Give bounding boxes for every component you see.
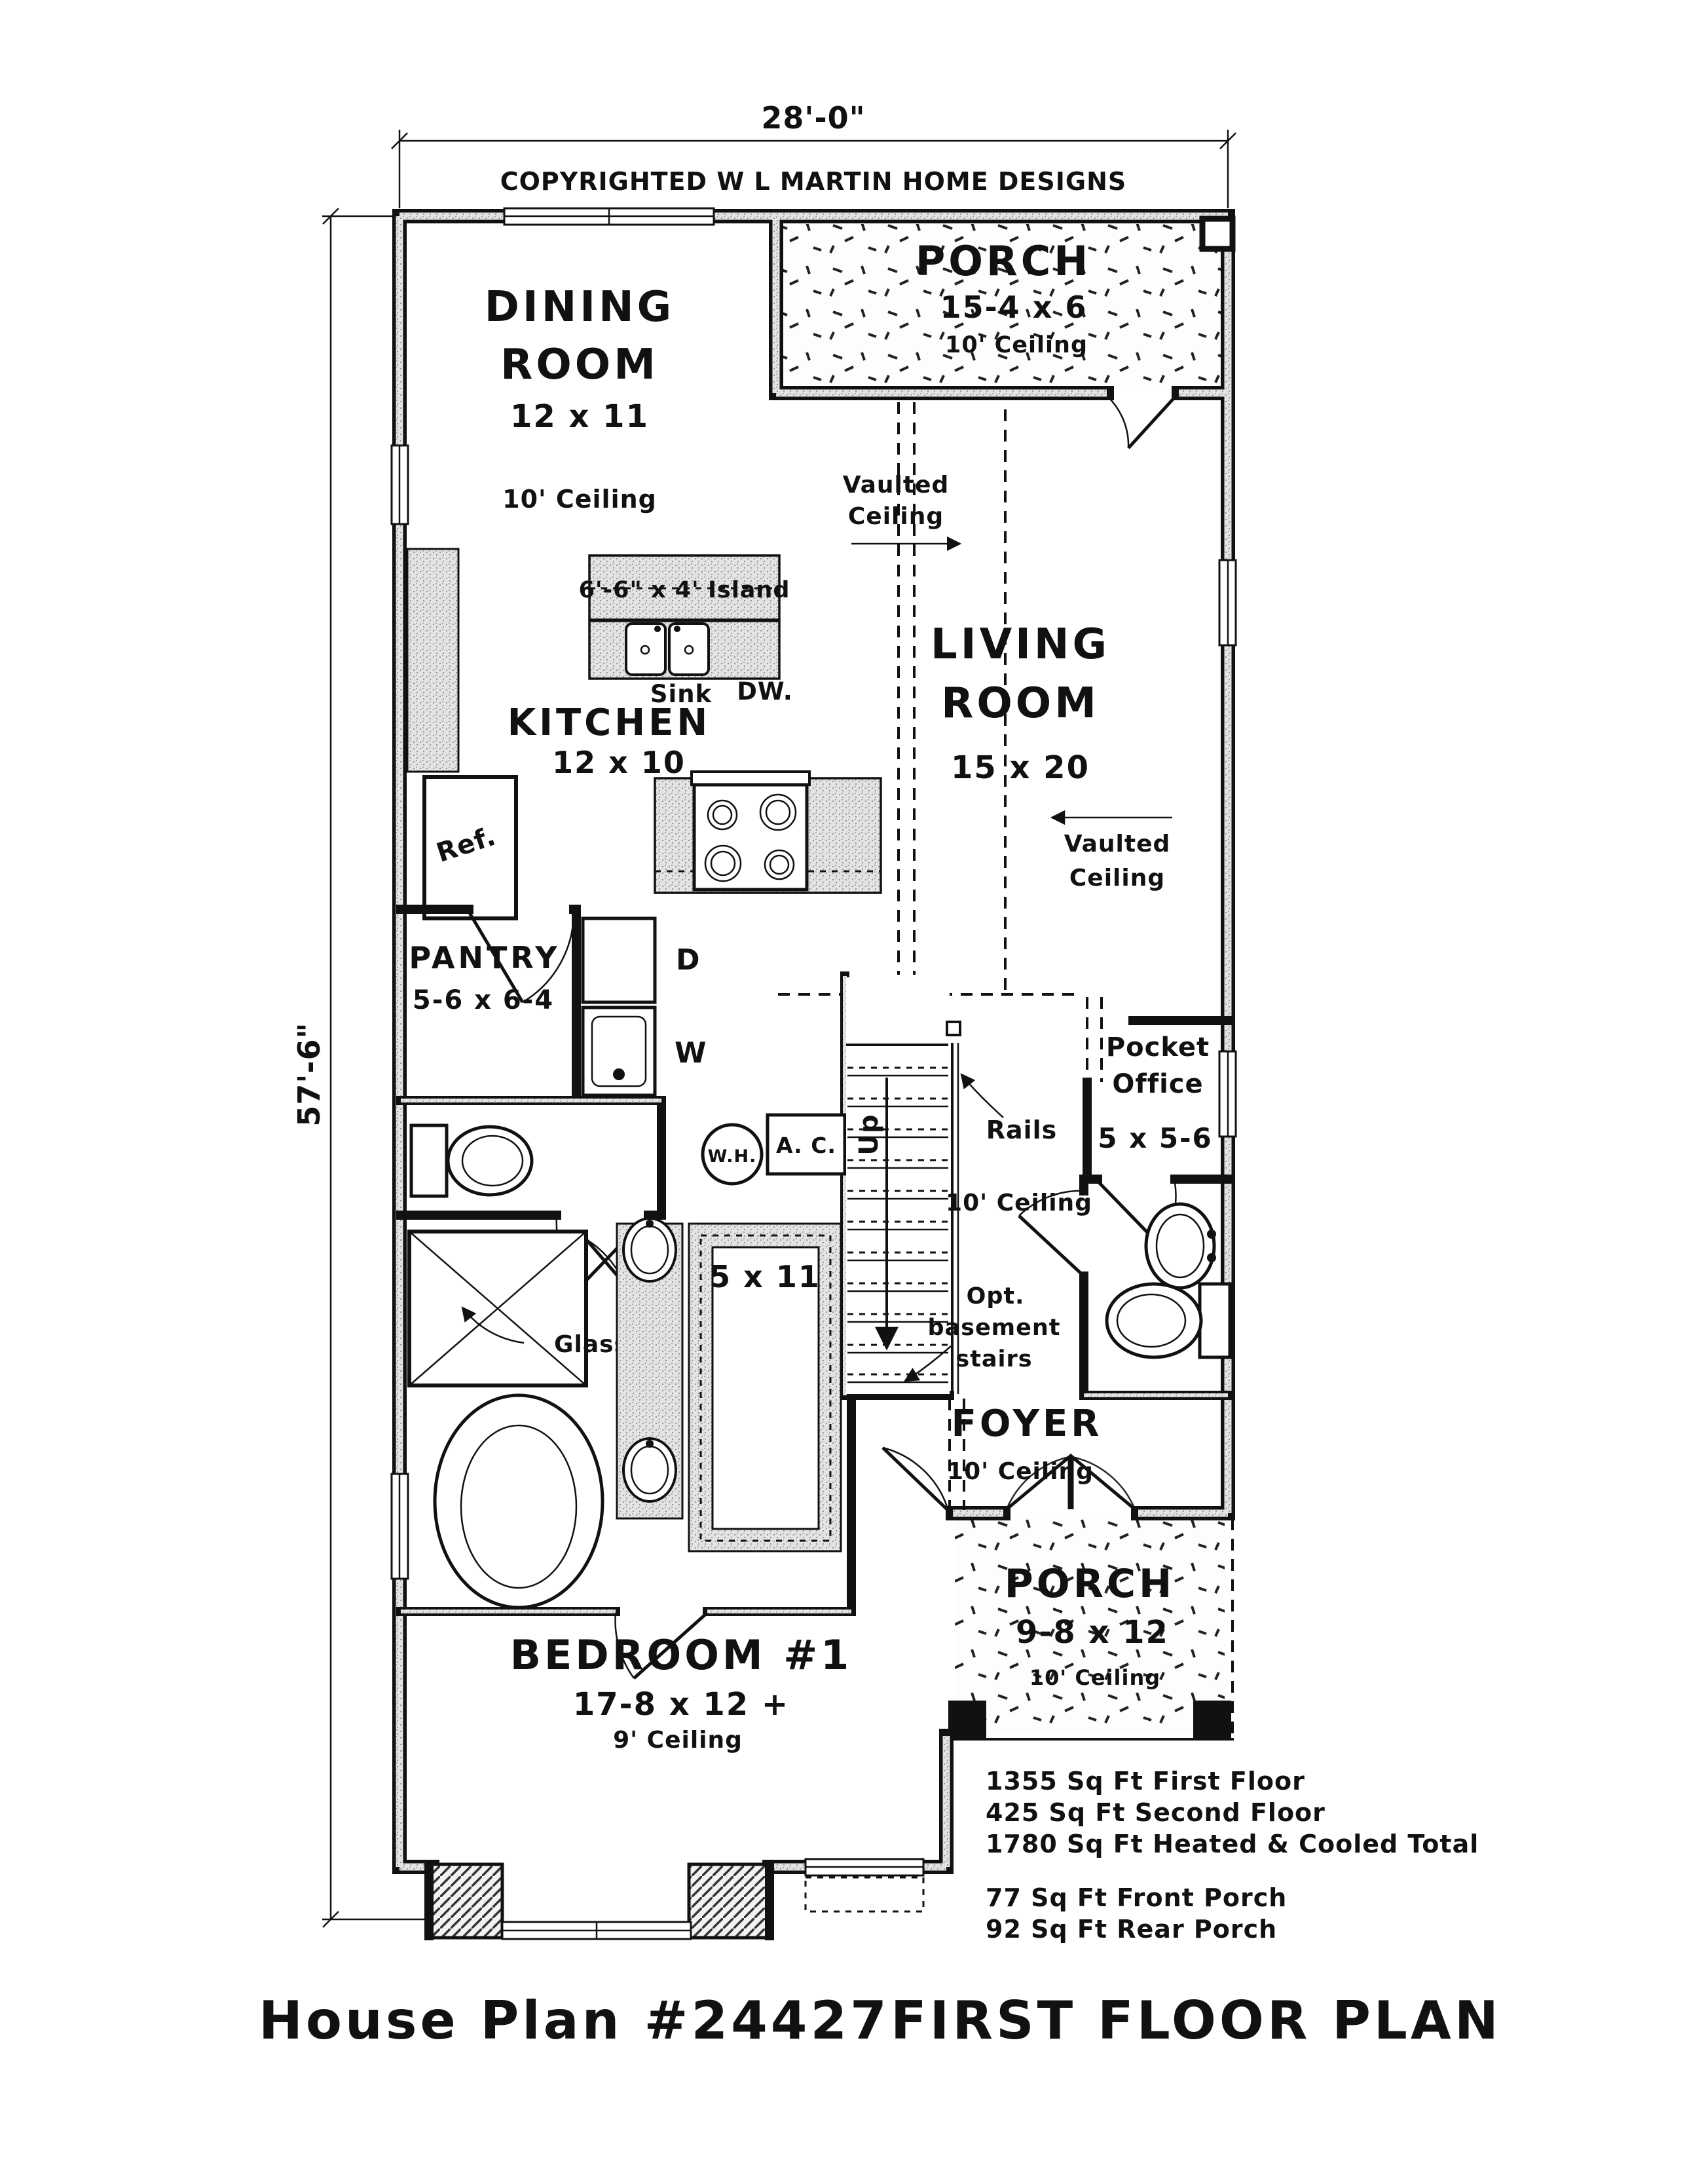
closet-size: 5 x 11: [709, 1259, 821, 1294]
depth-dimension-text: 57'-6": [291, 1022, 327, 1126]
kitchen-size: 12 x 10: [552, 745, 686, 780]
pantry-size: 5-6 x 6-4: [413, 985, 554, 1015]
front-porch-label: PORCH: [1005, 1561, 1175, 1607]
floor-plan-sheet: 28'-0" 57'-6" COPYRIGHTED W L MARTIN HOM…: [0, 0, 1687, 2184]
dryer-box: [583, 918, 655, 1002]
dryer-label: D: [676, 943, 701, 977]
dining-label-2: ROOM: [500, 341, 659, 389]
area-second-floor: 425 Sq Ft Second Floor: [986, 1798, 1325, 1827]
rear-porch-ceiling: 10' Ceiling: [945, 332, 1088, 358]
floor-plan-drawing: 28'-0" 57'-6" COPYRIGHTED W L MARTIN HOM…: [0, 0, 1687, 2184]
rear-porch-size: 15-4 x 6: [940, 290, 1088, 325]
area-rear-porch: 92 Sq Ft Rear Porch: [986, 1915, 1277, 1944]
porch-column: [1193, 1701, 1231, 1739]
opt-line2: basement: [927, 1315, 1060, 1341]
kitchen-counter: [655, 772, 881, 893]
porch-post: [1202, 219, 1233, 249]
rails-label: Rails: [986, 1116, 1058, 1144]
water-heater-label: W.H.: [708, 1146, 757, 1167]
area-first-floor: 1355 Sq Ft First Floor: [986, 1767, 1305, 1796]
kitchen-island: [589, 555, 779, 679]
front-porch-ceiling: 10' Ceiling: [1029, 1665, 1160, 1690]
pantry-label: PANTRY: [409, 940, 560, 975]
dining-room: DINING ROOM 12 x 11 10' Ceiling: [485, 283, 675, 514]
sheet-name: FIRST FLOOR PLAN: [891, 1990, 1502, 2051]
area-front-porch: 77 Sq Ft Front Porch: [986, 1883, 1287, 1912]
water-heater: W.H.: [703, 1125, 762, 1184]
bedroom-window: [806, 1859, 923, 1911]
copyright-text: COPYRIGHTED W L MARTIN HOME DESIGNS: [500, 167, 1127, 196]
dining-size: 12 x 11: [510, 398, 649, 435]
refrigerator: Ref.: [424, 777, 516, 918]
dining-window: [504, 208, 714, 225]
title-block: House Plan #24427 FIRST FLOOR PLAN: [259, 1990, 1502, 2051]
ac-label: A. C.: [776, 1133, 836, 1158]
closet-5x11: 5 x 11: [689, 1224, 841, 1551]
living-window: [1219, 560, 1236, 645]
vaulted1-line1: Vaulted: [843, 472, 950, 499]
powder-bath: [1107, 1204, 1230, 1357]
vaulted-ceiling-note-1: Vaulted Ceiling: [843, 472, 960, 544]
island-label: 6'-6" x 4' Island: [579, 577, 790, 603]
pantry-labels: PANTRY 5-6 x 6-4: [409, 940, 560, 1015]
water-closet: [411, 1125, 532, 1196]
foyer-labels: FOYER 10' Ceiling: [947, 1403, 1102, 1485]
kitchen-label: KITCHEN: [508, 702, 711, 744]
bedroom-label: BEDROOM #1: [510, 1631, 853, 1679]
porch-column: [948, 1701, 986, 1739]
hall-ceiling-label: 10' Ceiling: [946, 1190, 1092, 1216]
width-dimension-text: 28'-0": [761, 100, 865, 136]
master-bath: Glass 5 x 11: [409, 1218, 841, 1608]
bedroom-labels: BEDROOM #1 17-8 x 12 + 9' Ceiling: [510, 1631, 853, 1754]
pocket-office-label-1: Pocket: [1106, 1032, 1210, 1063]
stove: [692, 772, 809, 890]
dw-label: DW.: [737, 677, 793, 706]
laundry-stack: D W: [583, 918, 707, 1095]
washer-label: W: [675, 1036, 707, 1070]
pocket-office-labels: Pocket Office 5 x 5-6: [1098, 1032, 1212, 1154]
pocket-office-size: 5 x 5-6: [1098, 1122, 1212, 1154]
area-total: 1780 Sq Ft Heated & Cooled Total: [986, 1830, 1479, 1858]
living-label-2: ROOM: [941, 679, 1100, 728]
rear-porch-label: PORCH: [916, 237, 1091, 285]
vaulted2-line1: Vaulted: [1064, 831, 1171, 857]
vaulted2-line2: Ceiling: [1069, 865, 1165, 892]
dining-ceiling: 10' Ceiling: [502, 485, 657, 514]
area-summary: 1355 Sq Ft First Floor 425 Sq Ft Second …: [986, 1767, 1479, 1944]
living-label-1: LIVING: [931, 620, 1110, 669]
bedroom-bay: [429, 1864, 769, 1939]
opt-line1: Opt.: [967, 1283, 1025, 1309]
foyer-label: FOYER: [952, 1403, 1103, 1445]
up-label: Up: [854, 1114, 884, 1155]
dining-label-1: DINING: [485, 283, 675, 331]
front-porch-labels: PORCH 9-8 x 12 10' Ceiling: [1005, 1561, 1175, 1690]
bedroom-ceiling: 9' Ceiling: [613, 1727, 743, 1754]
vanity: [617, 1218, 682, 1518]
bedroom-size: 17-8 x 12 +: [573, 1686, 789, 1723]
pocket-office-label-2: Office: [1112, 1069, 1203, 1099]
plan-number: House Plan #24427: [259, 1990, 890, 2051]
hall-annotations: Rails 10' Ceiling: [946, 1074, 1092, 1216]
ac-unit: A. C.: [768, 1115, 845, 1174]
foyer-ceiling: 10' Ceiling: [947, 1458, 1094, 1485]
office-window: [1219, 1051, 1236, 1137]
dining-side-window: [392, 445, 408, 524]
front-porch-size: 9-8 x 12: [1016, 1614, 1169, 1651]
living-room: LIVING ROOM 15 x 20: [931, 620, 1110, 786]
bath-side-window: [392, 1474, 408, 1579]
living-size: 15 x 20: [951, 749, 1090, 786]
tub: [435, 1395, 602, 1608]
vaulted1-line2: Ceiling: [848, 503, 944, 530]
opt-line3: stairs: [955, 1346, 1032, 1372]
vaulted-ceiling-note-2: Vaulted Ceiling: [1052, 818, 1172, 892]
